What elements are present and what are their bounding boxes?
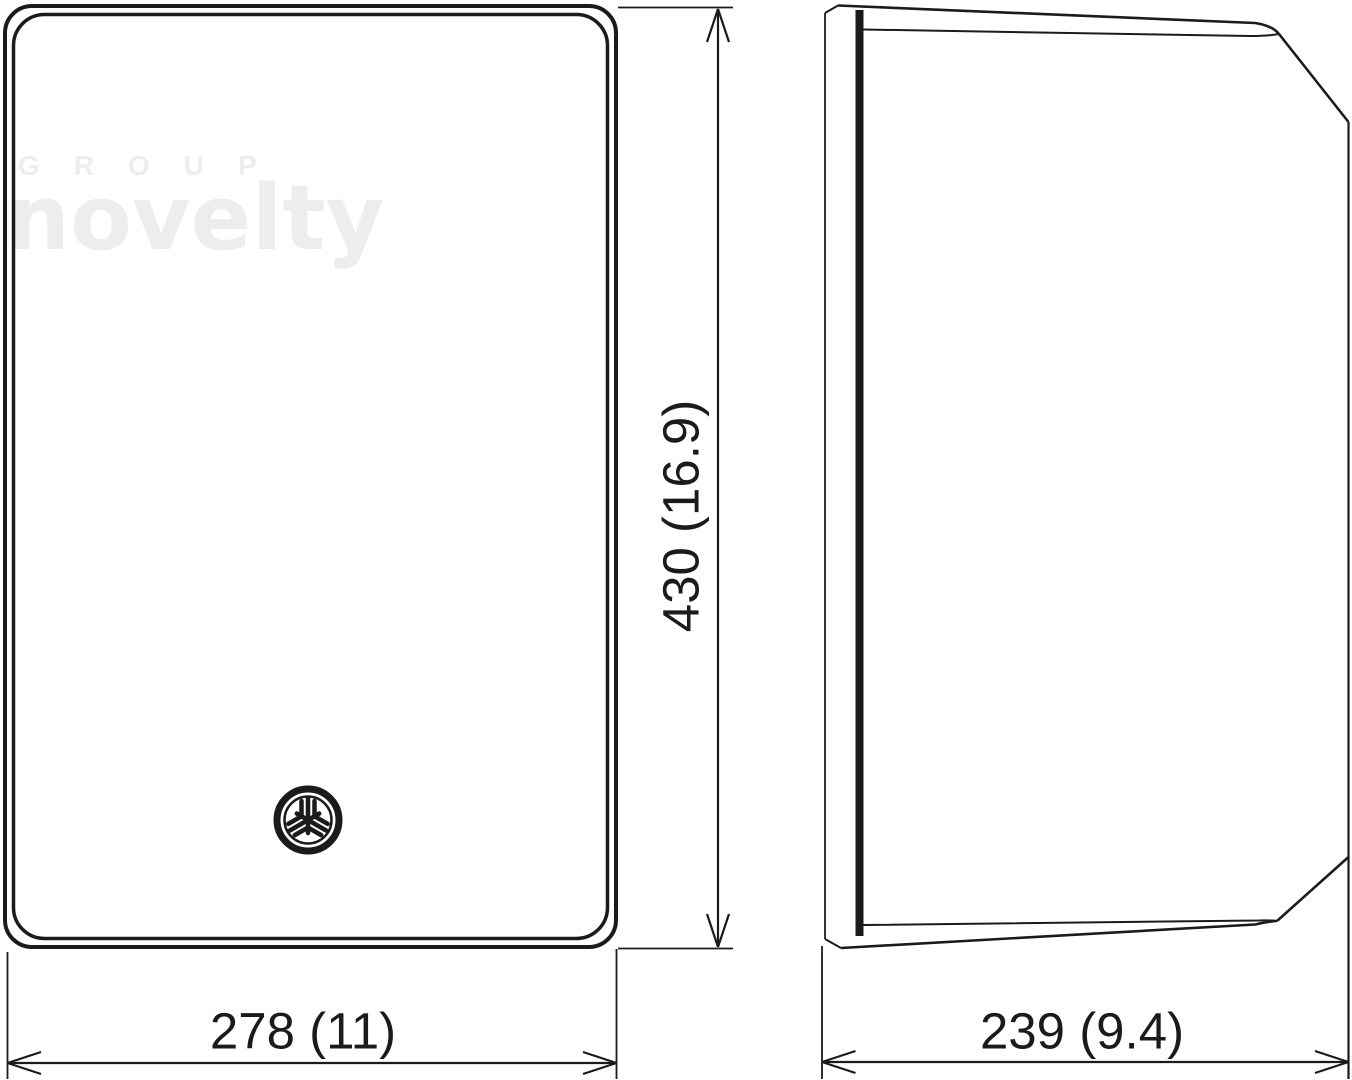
logo-tuning-forks xyxy=(287,799,330,836)
side-front-top-chamfer xyxy=(825,6,838,14)
front-view-inner-outline xyxy=(14,15,608,939)
front-view xyxy=(5,6,616,947)
side-rear-top-chamfer xyxy=(1279,34,1349,122)
side-top-inner-edge xyxy=(864,30,1280,37)
front-view-outer-outline xyxy=(5,6,616,947)
side-depth-dimension xyxy=(822,122,1349,1079)
side-front-bottom-chamfer xyxy=(825,939,841,948)
height-dimension-label: 430 (16.9) xyxy=(652,400,711,633)
drawing-canvas: GROUP novelty xyxy=(0,0,1352,1080)
side-depth-dimension-label: 239 (9.4) xyxy=(980,1002,1184,1061)
front-width-dimension-label: 278 (11) xyxy=(210,1002,396,1061)
yamaha-tuning-fork-logo-icon xyxy=(277,789,339,851)
side-rear-bottom-chamfer xyxy=(1277,857,1349,921)
side-bottom-inner-edge xyxy=(864,920,1278,925)
side-view xyxy=(825,6,1349,949)
